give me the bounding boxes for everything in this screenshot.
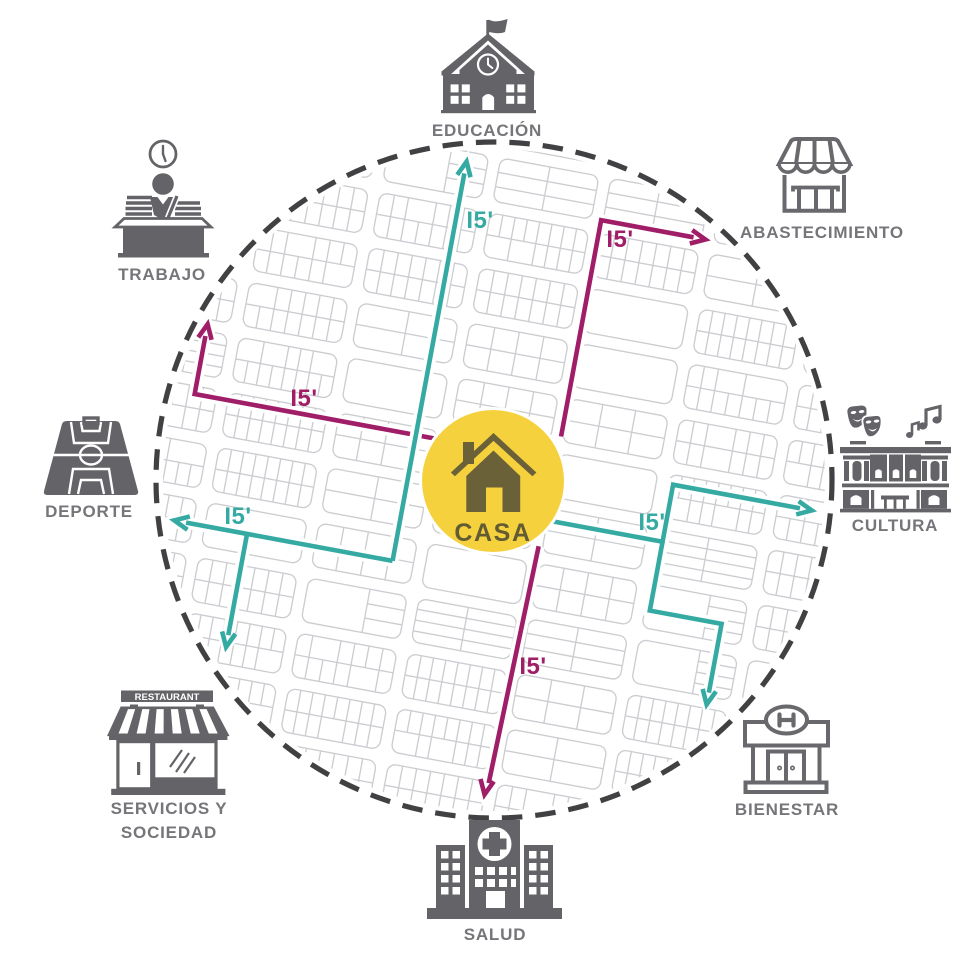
svg-text:ABASTECIMIENTO: ABASTECIMIENTO [740, 223, 904, 242]
svg-text:EDUCACIÓN: EDUCACIÓN [432, 121, 542, 140]
svg-text:SALUD: SALUD [464, 925, 527, 944]
svg-text:SERVICIOS Y: SERVICIOS Y [111, 799, 228, 818]
svg-text:CULTURA: CULTURA [852, 516, 939, 535]
svg-text:I5': I5' [606, 226, 633, 253]
svg-text:SOCIEDAD: SOCIEDAD [121, 823, 217, 842]
svg-text:TRABAJO: TRABAJO [118, 265, 206, 284]
svg-text:BIENESTAR: BIENESTAR [735, 800, 839, 819]
svg-text:CASA: CASA [454, 519, 531, 547]
svg-text:I5': I5' [466, 207, 493, 234]
svg-text:RESTAURANT: RESTAURANT [135, 692, 200, 703]
svg-text:DEPORTE: DEPORTE [45, 502, 133, 521]
svg-text:I5': I5' [519, 653, 546, 680]
svg-text:I5': I5' [224, 503, 251, 530]
svg-text:I5': I5' [290, 385, 317, 412]
svg-text:I5': I5' [638, 509, 665, 536]
